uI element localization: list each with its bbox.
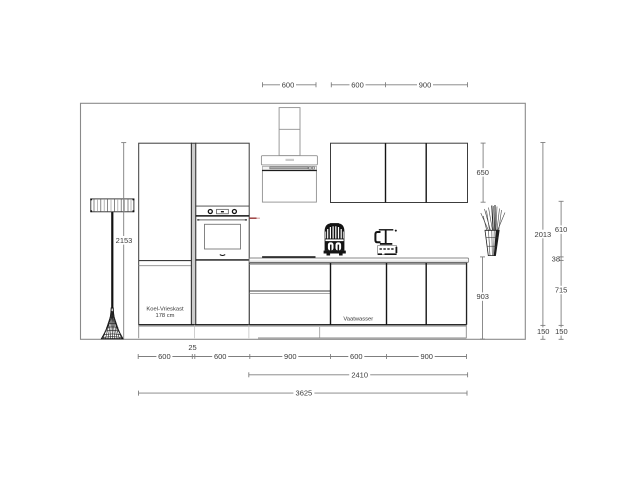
svg-text:38: 38 — [552, 254, 560, 263]
svg-text:650: 650 — [476, 168, 489, 177]
svg-text:600: 600 — [282, 80, 295, 89]
svg-text:903: 903 — [476, 292, 489, 301]
svg-text:25: 25 — [188, 343, 196, 352]
svg-text:2153: 2153 — [116, 236, 133, 245]
svg-text:600: 600 — [351, 81, 364, 90]
svg-text:600: 600 — [158, 352, 171, 361]
svg-text:900: 900 — [284, 352, 297, 361]
svg-text:715: 715 — [555, 286, 568, 295]
svg-text:900: 900 — [419, 81, 432, 90]
svg-text:900: 900 — [420, 352, 433, 361]
svg-text:2410: 2410 — [351, 370, 368, 379]
svg-text:3625: 3625 — [296, 389, 313, 398]
svg-text:600: 600 — [214, 352, 227, 361]
svg-text:610: 610 — [555, 225, 568, 234]
svg-text:Vaatwasser: Vaatwasser — [343, 316, 373, 322]
svg-text:600: 600 — [350, 352, 363, 361]
svg-text:2013: 2013 — [535, 230, 552, 239]
svg-text:150: 150 — [555, 327, 568, 336]
svg-text:150: 150 — [537, 327, 550, 336]
svg-text:Koel-Vrieskast: Koel-Vrieskast — [146, 307, 184, 313]
svg-text:178 cm: 178 cm — [155, 313, 174, 319]
